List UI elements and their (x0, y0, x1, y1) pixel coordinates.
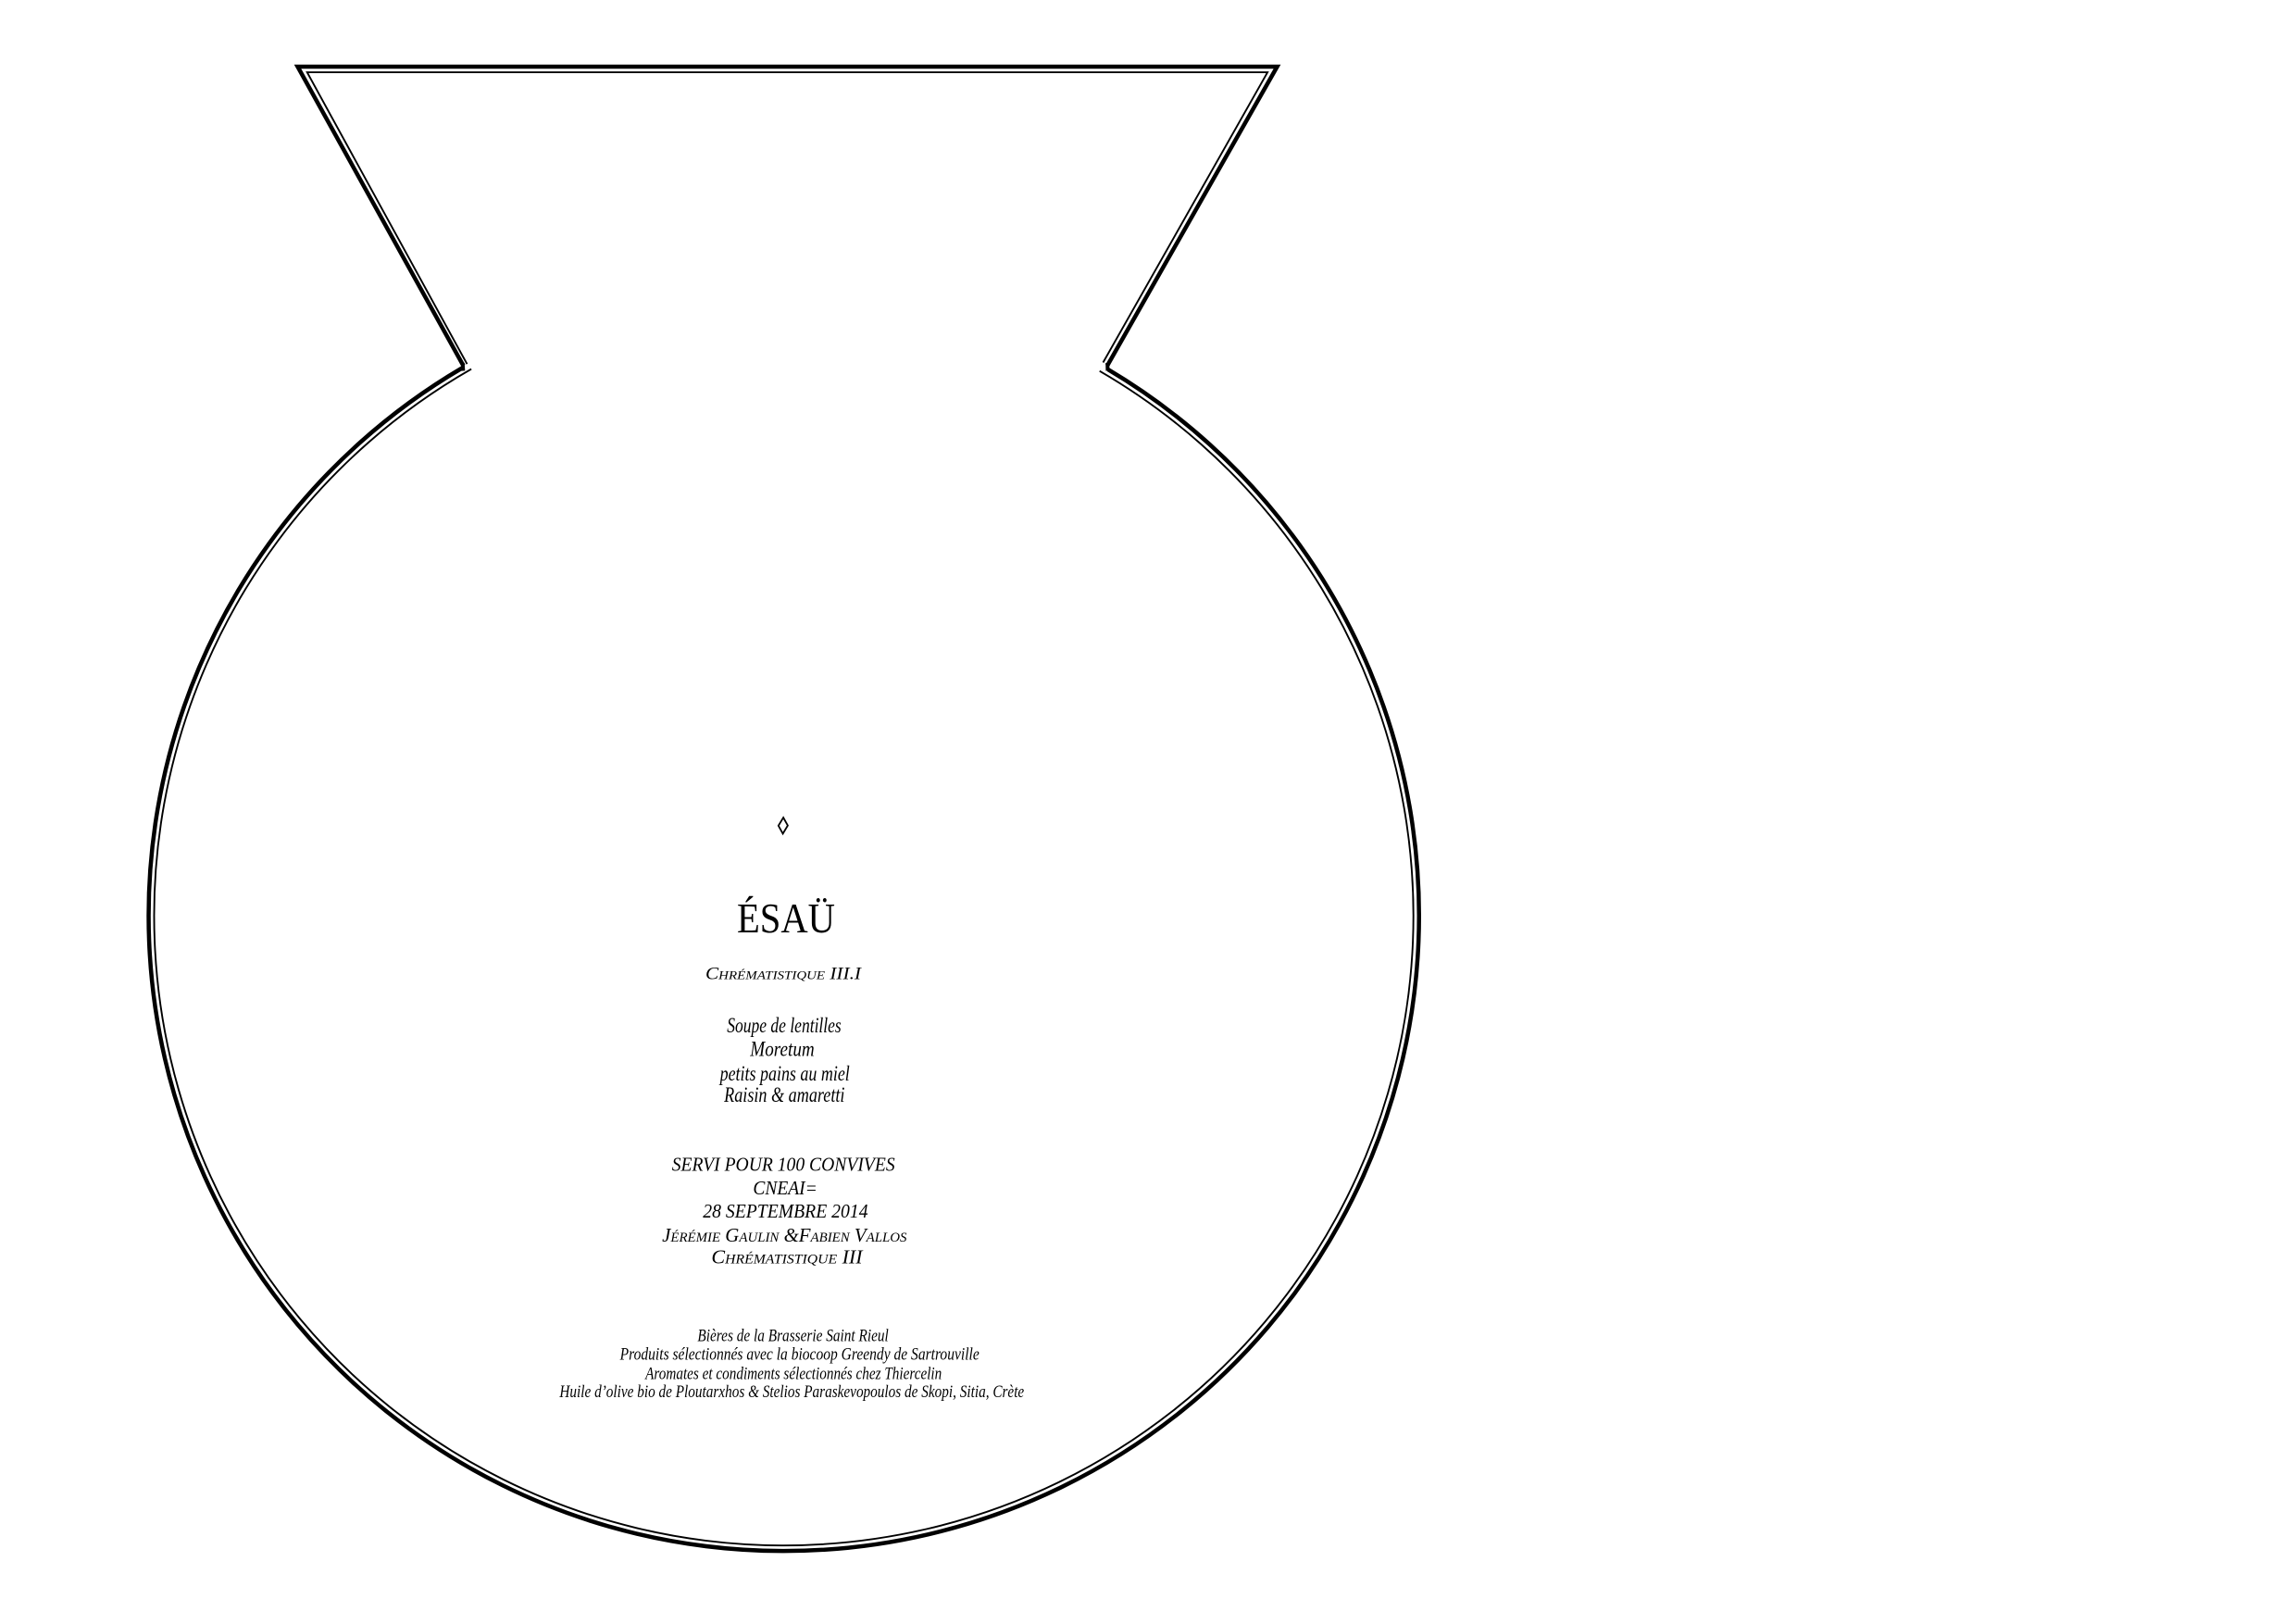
svg-text:CNEAI=: CNEAI= (753, 1177, 817, 1199)
svg-text:28 SEPTEMBRE 2014: 28 SEPTEMBRE 2014 (703, 1200, 868, 1222)
svg-text:Moretum: Moretum (749, 1037, 814, 1061)
svg-text:Jérémie Gaulin &Fabien Vallos: Jérémie Gaulin &Fabien Vallos (662, 1224, 907, 1246)
svg-text:Aromates et condiments sélecti: Aromates et condiments sélectionnés chez… (644, 1365, 942, 1384)
svg-text:ÉSAÜ: ÉSAÜ (737, 894, 835, 942)
svg-text:Bières de la Brasserie Saint R: Bières de la Brasserie Saint Rieul (697, 1326, 888, 1345)
svg-text:Produits sélectionnés avec la: Produits sélectionnés avec la biocoop Gr… (619, 1345, 980, 1365)
svg-text:Chrématistique III: Chrématistique III (711, 1246, 863, 1268)
svg-text:Raisin & amaretti: Raisin & amaretti (723, 1083, 844, 1107)
svg-text:Chrématistique III.I: Chrématistique III.I (705, 966, 862, 984)
svg-text:SERVI POUR 100 CONVIVES: SERVI POUR 100 CONVIVES (672, 1153, 895, 1175)
svg-text:Soupe de lentilles: Soupe de lentilles (727, 1014, 842, 1038)
svg-text:Huile d’olive bio de Ploutarxh: Huile d’olive bio de Ploutarxhos & Steli… (559, 1382, 1025, 1402)
